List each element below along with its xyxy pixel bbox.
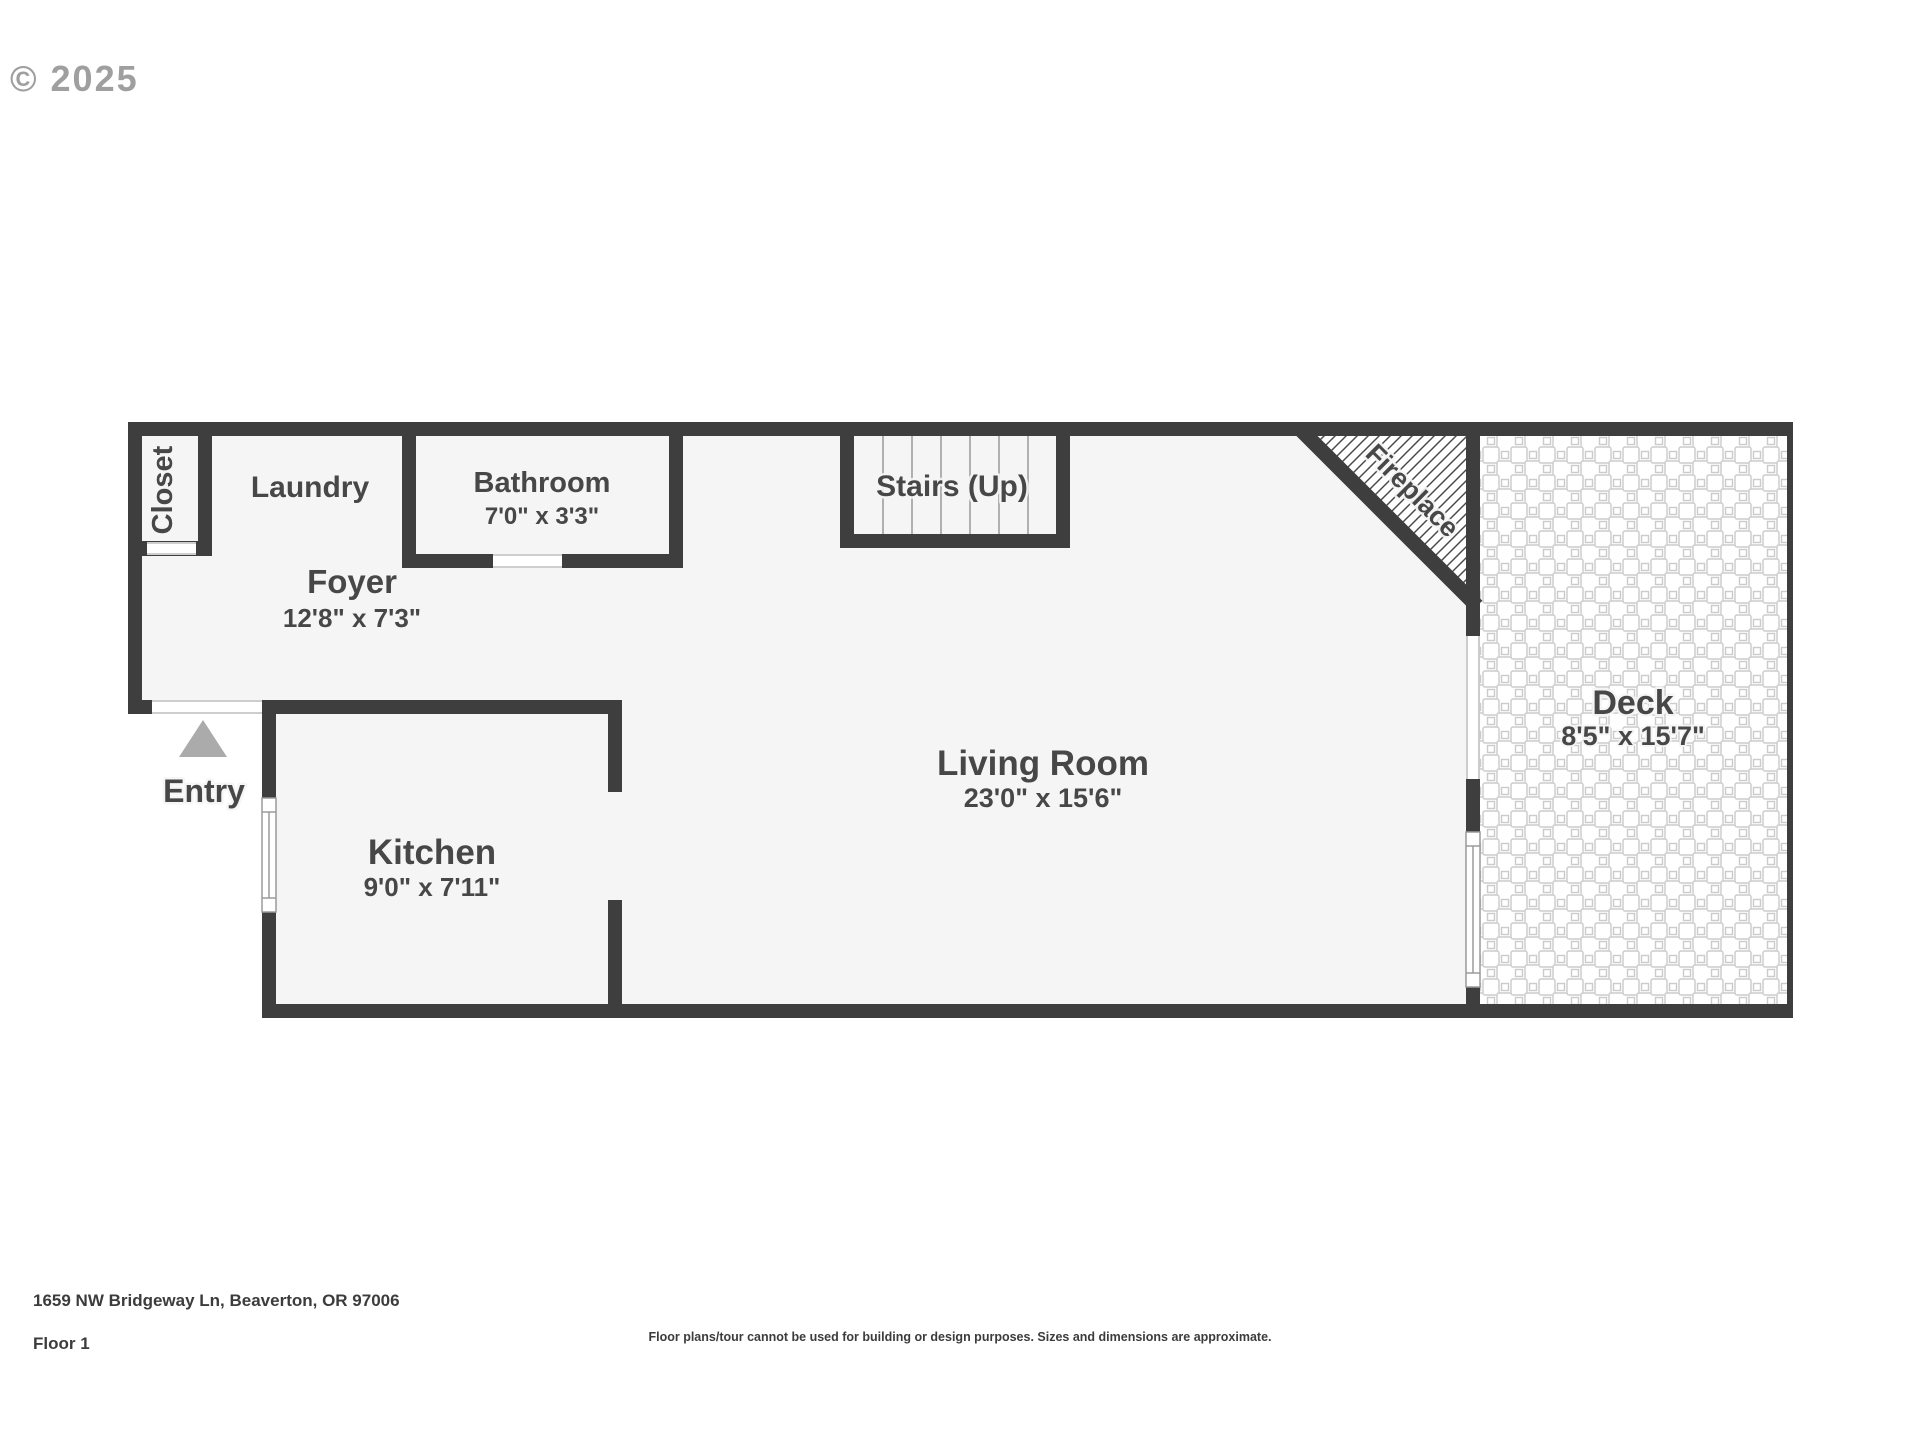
room-label-bathroom: Bathroom bbox=[474, 467, 611, 499]
room-dims-kitchen: 9'0" x 7'11" bbox=[364, 872, 501, 902]
room-label-entry: Entry bbox=[163, 773, 245, 809]
bathroom-door-opening bbox=[493, 554, 562, 568]
room-label-laundry: Laundry bbox=[251, 471, 370, 504]
room-label-deck: Deck bbox=[1592, 684, 1673, 722]
footer-address: 1659 NW Bridgeway Ln, Beaverton, OR 9700… bbox=[33, 1291, 400, 1311]
deck-window bbox=[1466, 832, 1480, 987]
floor-plan: Closet Laundry Bathroom 7'0" x 3'3" Foye… bbox=[0, 0, 1920, 1440]
floor-plan-page: © 2025 bbox=[0, 0, 1920, 1440]
entry-door-opening bbox=[152, 700, 262, 714]
entry-arrow-icon bbox=[179, 720, 227, 757]
kitchen-window bbox=[262, 798, 276, 912]
room-dims-deck: 8'5" x 15'7" bbox=[1561, 721, 1705, 751]
closet-door-opening bbox=[147, 542, 196, 555]
room-label-stairs: Stairs (Up) bbox=[876, 470, 1028, 503]
house-floor bbox=[128, 422, 1480, 1018]
room-dims-bathroom: 7'0" x 3'3" bbox=[485, 503, 599, 530]
room-label-foyer: Foyer bbox=[307, 563, 397, 600]
room-label-kitchen: Kitchen bbox=[368, 833, 496, 872]
room-dims-living-room: 23'0" x 15'6" bbox=[964, 783, 1123, 813]
room-label-closet: Closet bbox=[147, 445, 179, 534]
room-dims-foyer: 12'8" x 7'3" bbox=[283, 603, 421, 633]
deck-door-opening bbox=[1466, 636, 1480, 779]
room-label-living-room: Living Room bbox=[937, 744, 1149, 783]
footer-disclaimer: Floor plans/tour cannot be used for buil… bbox=[0, 1330, 1920, 1344]
